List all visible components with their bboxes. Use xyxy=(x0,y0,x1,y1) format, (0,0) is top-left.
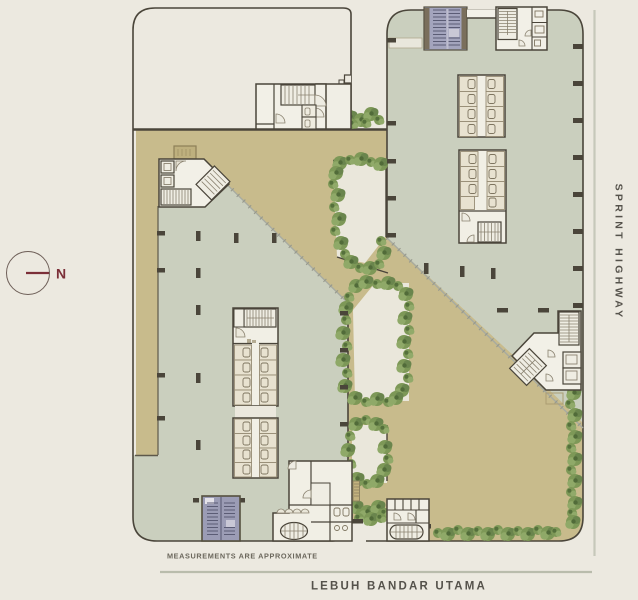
svg-text:LEBUH BANDAR UTAMA: LEBUH BANDAR UTAMA xyxy=(311,581,487,593)
svg-text:MEASUREMENTS ARE APPROXIMATE: MEASUREMENTS ARE APPROXIMATE xyxy=(167,552,318,561)
svg-text:N: N xyxy=(56,266,66,282)
svg-text:SPRINT HIGHWAY: SPRINT HIGHWAY xyxy=(613,184,625,321)
